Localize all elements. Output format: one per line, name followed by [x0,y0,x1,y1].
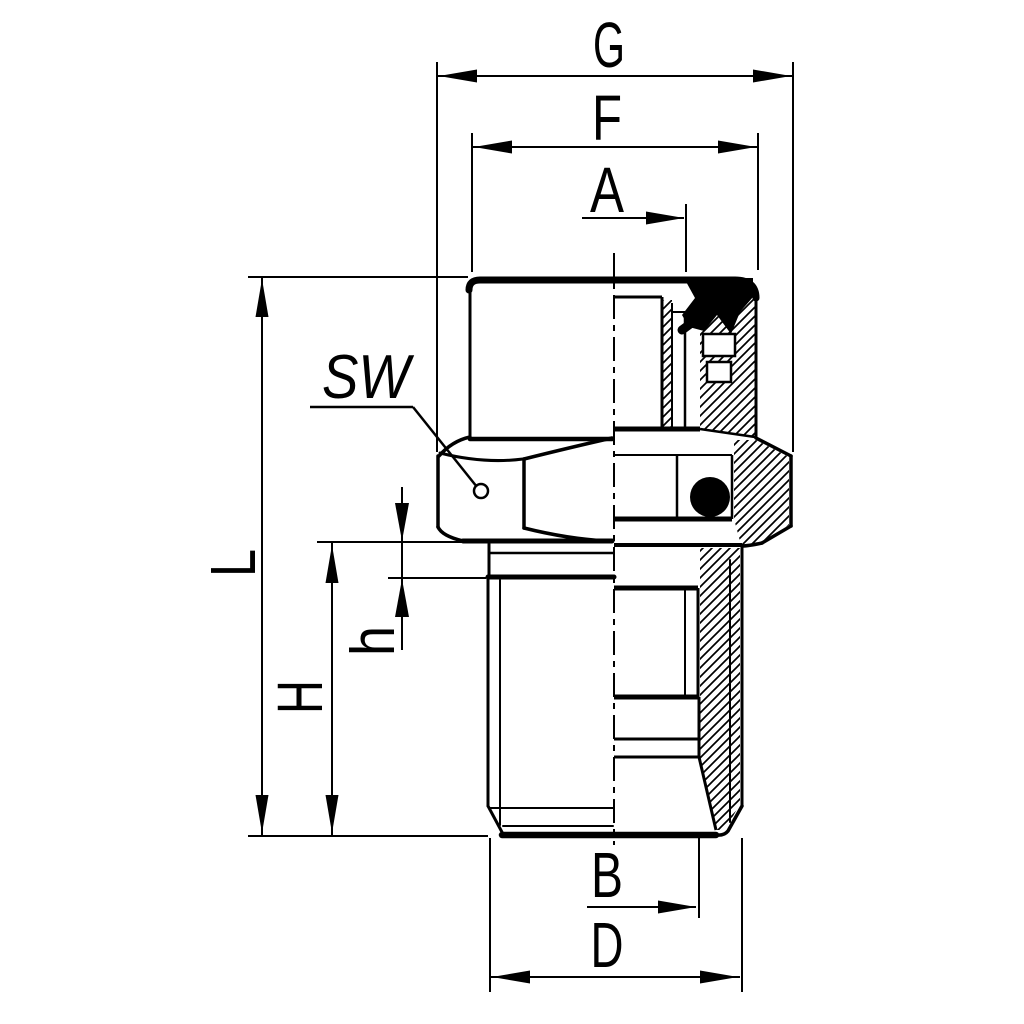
dimension-label-d: D [591,909,624,981]
dimension-label-sw: SW [322,343,415,412]
dimension-label-f: F [592,82,622,154]
dimension-label-h-upper: H [264,680,336,714]
dimension-label-a: A [590,154,624,226]
sw-leader [310,407,488,498]
technical-drawing-canvas: G F A SW L H [0,0,1024,1024]
dimension-label-b: B [591,839,623,911]
dimension-label-l: L [197,549,269,577]
fitting-cross-section-drawing: G F A SW L H [0,0,1024,1024]
o-ring-seal [690,477,730,517]
dimension-label-h-lower: h [339,626,408,656]
dimension-label-g: G [593,9,625,81]
dimension-H [317,542,462,835]
